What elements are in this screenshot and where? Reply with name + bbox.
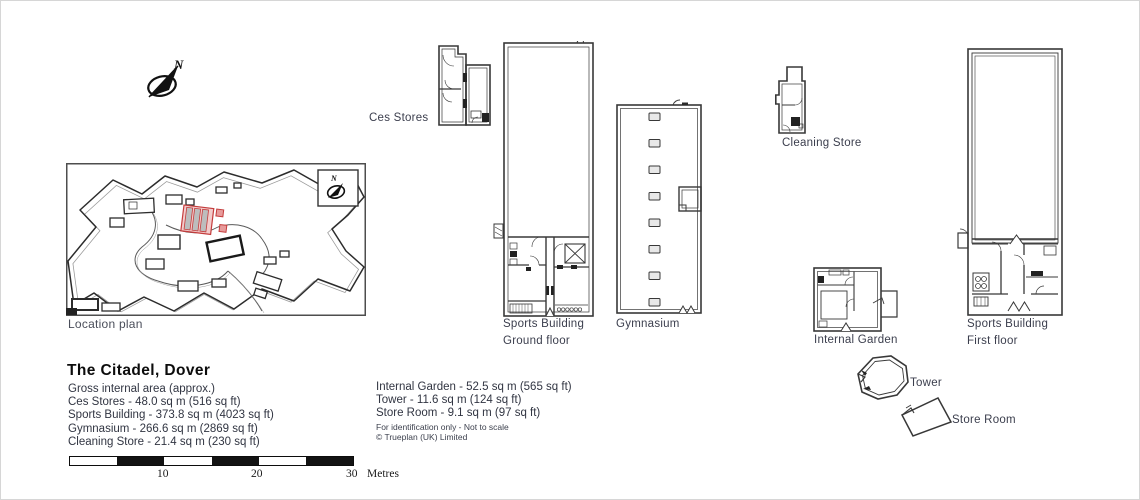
ces-stores-label: Ces Stores: [369, 112, 428, 124]
scale-segment: [164, 457, 211, 465]
location-plan-compass-icon: N: [318, 170, 358, 206]
north-arrow-icon: N: [145, 53, 195, 103]
sports-building-gf-label-2: Ground floor: [503, 335, 570, 347]
sports-building-ff-label-1: Sports Building: [967, 318, 1048, 330]
floorplan-page: N: [0, 0, 1140, 500]
copyright-text: © Trueplan (UK) Limited: [376, 432, 572, 443]
internal-garden-plan: [809, 259, 901, 337]
ces-stores-plan: [434, 43, 496, 133]
scale-segment: [70, 457, 117, 465]
area-line: Cleaning Store - 21.4 sq m (230 sq ft): [68, 436, 274, 449]
sports-building-ground-floor-plan: [493, 41, 597, 319]
scale-unit-label: Metres: [367, 468, 399, 480]
area-schedule-primary: Gross internal area (approx.) Ces Stores…: [68, 383, 274, 449]
area-line: Tower - 11.6 sq m (124 sq ft): [376, 394, 572, 407]
disclaimer-text: For identification only - Not to scale: [376, 422, 572, 433]
store-room-label: Store Room: [952, 414, 1016, 426]
scale-segment: [212, 457, 259, 465]
sports-building-first-floor-plan: [956, 45, 1072, 321]
scale-segment: [117, 457, 164, 465]
gymnasium-plan: [615, 99, 705, 319]
gross-internal-area-note: Gross internal area (approx.): [68, 383, 274, 396]
tower-label: Tower: [910, 377, 942, 389]
scale-segment: [306, 457, 353, 465]
scale-tick-30: 30: [346, 468, 358, 480]
area-schedule-secondary: Internal Garden - 52.5 sq m (565 sq ft) …: [376, 381, 572, 443]
area-line: Gymnasium - 266.6 sq m (2869 sq ft): [68, 423, 274, 436]
area-line: Internal Garden - 52.5 sq m (565 sq ft): [376, 381, 572, 394]
area-line: Sports Building - 373.8 sq m (4023 sq ft…: [68, 409, 274, 422]
gymnasium-label: Gymnasium: [616, 318, 680, 330]
area-line: Store Room - 9.1 sq m (97 sq ft): [376, 407, 572, 420]
internal-garden-label: Internal Garden: [814, 334, 898, 346]
location-plan-map: N: [66, 163, 366, 316]
cleaning-store-label: Cleaning Store: [782, 137, 862, 149]
cleaning-store-plan: [775, 65, 815, 137]
area-line: Ces Stores - 48.0 sq m (516 sq ft): [68, 396, 274, 409]
sports-building-ff-label-2: First floor: [967, 335, 1018, 347]
scale-tick-10: 10: [157, 468, 169, 480]
scale-tick-20: 20: [251, 468, 263, 480]
store-room-plan: [897, 394, 957, 440]
sports-building-gf-label-1: Sports Building: [503, 318, 584, 330]
location-plan-label: Location plan: [68, 317, 143, 331]
page-title: The Citadel, Dover: [67, 362, 210, 380]
scale-bar: [69, 456, 354, 466]
scale-segment: [259, 457, 306, 465]
